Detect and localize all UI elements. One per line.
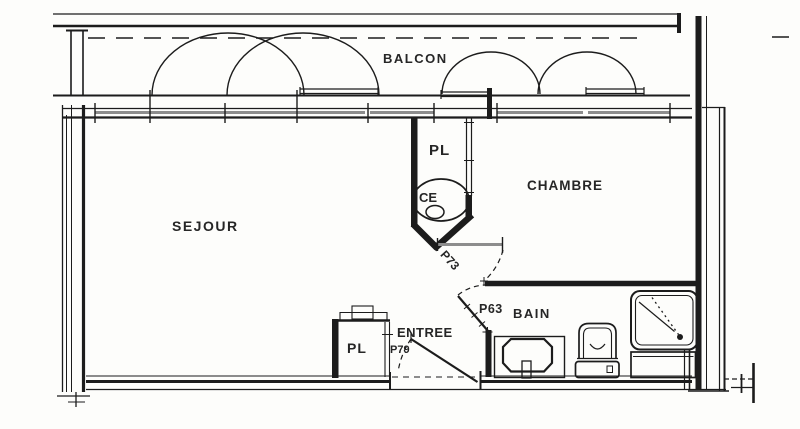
entry-closet: PL — [332, 306, 393, 378]
label-chambre: CHAMBRE — [527, 178, 603, 193]
floor-plan: BALCON — [0, 0, 800, 429]
center-closet: CE PL — [411, 117, 474, 249]
label-p73: P73 — [438, 248, 463, 273]
shower — [631, 291, 698, 350]
floor-plan-drawing: BALCON — [0, 0, 800, 429]
left-wall — [57, 105, 90, 407]
bathroom: BAIN — [485, 284, 700, 391]
label-pl-entry: PL — [347, 340, 367, 356]
shower-drain — [677, 334, 683, 340]
bottom-wall — [86, 371, 726, 390]
top-wall-windows — [62, 87, 692, 123]
door-p79: P79 — [390, 334, 478, 383]
balcony-column — [66, 31, 88, 96]
toilet — [576, 324, 620, 378]
label-p63: P63 — [479, 302, 503, 316]
label-p79: P79 — [390, 344, 410, 356]
door-p73: P73 — [438, 237, 504, 281]
balcony: BALCON — [53, 13, 800, 96]
label-bain: BAIN — [513, 306, 551, 321]
right-wall — [688, 16, 729, 391]
label-balcon: BALCON — [383, 51, 448, 66]
water-heater: CE — [413, 179, 469, 221]
label-sejour: SEJOUR — [172, 218, 239, 234]
label-ce: CE — [419, 190, 437, 205]
shower-cabinet — [631, 349, 696, 390]
label-pl-center: PL — [429, 142, 450, 159]
plumbing-symbol — [724, 363, 754, 403]
label-entree: ENTREE — [397, 325, 453, 340]
washbasin — [495, 337, 565, 379]
